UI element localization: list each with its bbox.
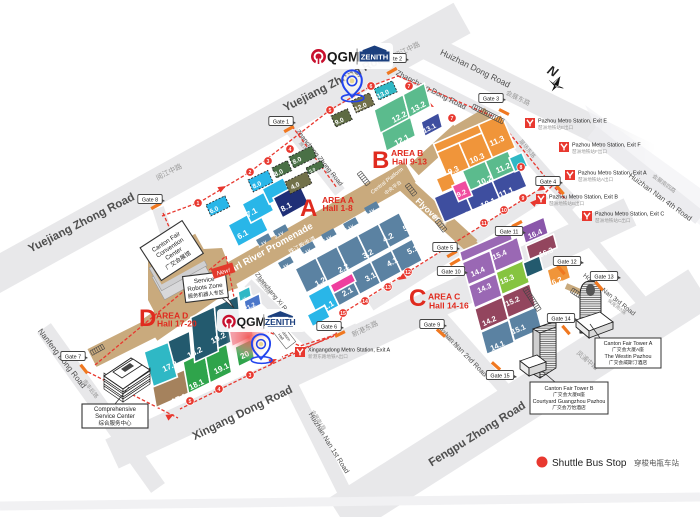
- svg-text:5: 5: [329, 108, 332, 114]
- svg-text:12: 12: [405, 270, 411, 276]
- svg-text:穿梭电瓶车站: 穿梭电瓶车站: [634, 458, 679, 468]
- svg-text:Gate 9: Gate 9: [424, 322, 440, 328]
- svg-text:Xingangdong Metro Station, Exi: Xingangdong Metro Station, Exit A: [308, 348, 391, 354]
- svg-text:Pazhou Metro Station, Exit E: Pazhou Metro Station, Exit E: [538, 119, 607, 125]
- svg-text:6: 6: [370, 84, 373, 90]
- svg-text:Hall 14-16: Hall 14-16: [429, 301, 469, 311]
- svg-text:C: C: [409, 285, 426, 312]
- svg-text:ZENITH: ZENITH: [265, 317, 296, 327]
- svg-text:Gate 15: Gate 15: [490, 373, 509, 379]
- svg-text:琶洲地铁站F出口: 琶洲地铁站F出口: [572, 148, 607, 155]
- svg-text:4: 4: [218, 387, 221, 393]
- svg-text:ZENITH: ZENITH: [361, 53, 388, 62]
- svg-text:Gate 1: Gate 1: [273, 119, 289, 125]
- svg-text:3: 3: [267, 159, 270, 165]
- svg-text:Gate 3: Gate 3: [483, 96, 499, 102]
- svg-text:Hall 1-8: Hall 1-8: [323, 203, 354, 213]
- svg-text:Pazhou Metro Station, Exit B: Pazhou Metro Station, Exit B: [549, 195, 618, 201]
- svg-text:广交会威斯汀酒店: 广交会威斯汀酒店: [609, 359, 648, 366]
- svg-text:Pazhou Metro Station, Exit A: Pazhou Metro Station, Exit A: [578, 171, 647, 177]
- svg-text:Gate 14: Gate 14: [551, 316, 570, 322]
- svg-text:Canton Fair Tower A: Canton Fair Tower A: [604, 341, 653, 347]
- svg-text:QGM: QGM: [327, 50, 359, 65]
- svg-text:2: 2: [249, 170, 252, 176]
- svg-text:Shuttle Bus Stop: Shuttle Bus Stop: [552, 458, 627, 469]
- svg-text:广交会万怡酒店: 广交会万怡酒店: [552, 404, 586, 411]
- svg-text:1: 1: [197, 201, 200, 207]
- svg-text:Hall 17-20: Hall 17-20: [157, 319, 197, 329]
- svg-text:5: 5: [189, 399, 192, 405]
- svg-text:琶洲地铁站C出口: 琶洲地铁站C出口: [595, 217, 631, 224]
- svg-text:广交会大厦B座: 广交会大厦B座: [553, 391, 585, 398]
- svg-text:琶洲地铁站B出口: 琶洲地铁站B出口: [549, 200, 585, 207]
- svg-text:Pazhou Metro Station, Exit F: Pazhou Metro Station, Exit F: [572, 143, 641, 149]
- svg-text:QGM: QGM: [237, 315, 266, 329]
- svg-text:Pazhou Metro Station, Exit C: Pazhou Metro Station, Exit C: [595, 212, 664, 218]
- svg-text:综合服务中心: 综合服务中心: [98, 419, 132, 427]
- svg-text:Gate 10: Gate 10: [441, 269, 460, 275]
- svg-text:9: 9: [522, 196, 525, 202]
- svg-text:广交会大厦A座: 广交会大厦A座: [612, 346, 644, 353]
- svg-text:Hall 9-13: Hall 9-13: [392, 157, 427, 167]
- svg-text:Canton Fair Tower B: Canton Fair Tower B: [544, 386, 593, 392]
- svg-text:Gate 5: Gate 5: [437, 245, 453, 251]
- svg-text:7: 7: [451, 116, 454, 122]
- svg-text:Gate 13: Gate 13: [594, 274, 613, 280]
- svg-text:3: 3: [249, 373, 252, 379]
- svg-text:15: 15: [340, 311, 346, 317]
- svg-text:Gate 4: Gate 4: [540, 179, 556, 185]
- svg-text:13: 13: [385, 285, 391, 291]
- svg-text:7: 7: [408, 84, 411, 90]
- svg-text:11: 11: [481, 221, 487, 227]
- svg-text:8: 8: [520, 165, 523, 171]
- svg-text:Gate 7: Gate 7: [65, 354, 81, 360]
- svg-text:琶洲地铁站E出口: 琶洲地铁站E出口: [538, 124, 574, 131]
- svg-text:Gate 8: Gate 8: [142, 197, 158, 203]
- svg-text:The Westin Pazhou: The Westin Pazhou: [605, 354, 652, 360]
- svg-text:Gate 11: Gate 11: [500, 229, 519, 235]
- svg-text:10: 10: [501, 208, 507, 214]
- svg-text:D: D: [139, 305, 156, 332]
- svg-text:琶洲地铁站A出口: 琶洲地铁站A出口: [578, 176, 614, 183]
- svg-text:Gate 12: Gate 12: [557, 259, 576, 265]
- svg-text:4: 4: [289, 147, 292, 153]
- svg-text:Gate 6: Gate 6: [321, 324, 337, 330]
- svg-text:Service Center: Service Center: [95, 414, 135, 420]
- svg-text:Courtyard Guangzhou Pazhou: Courtyard Guangzhou Pazhou: [533, 399, 606, 405]
- svg-text:新港东路地铁A出口: 新港东路地铁A出口: [308, 353, 348, 360]
- svg-text:B: B: [372, 147, 389, 174]
- svg-text:A: A: [300, 195, 317, 222]
- svg-text:14: 14: [362, 299, 368, 305]
- svg-text:Comprehensive: Comprehensive: [94, 407, 137, 413]
